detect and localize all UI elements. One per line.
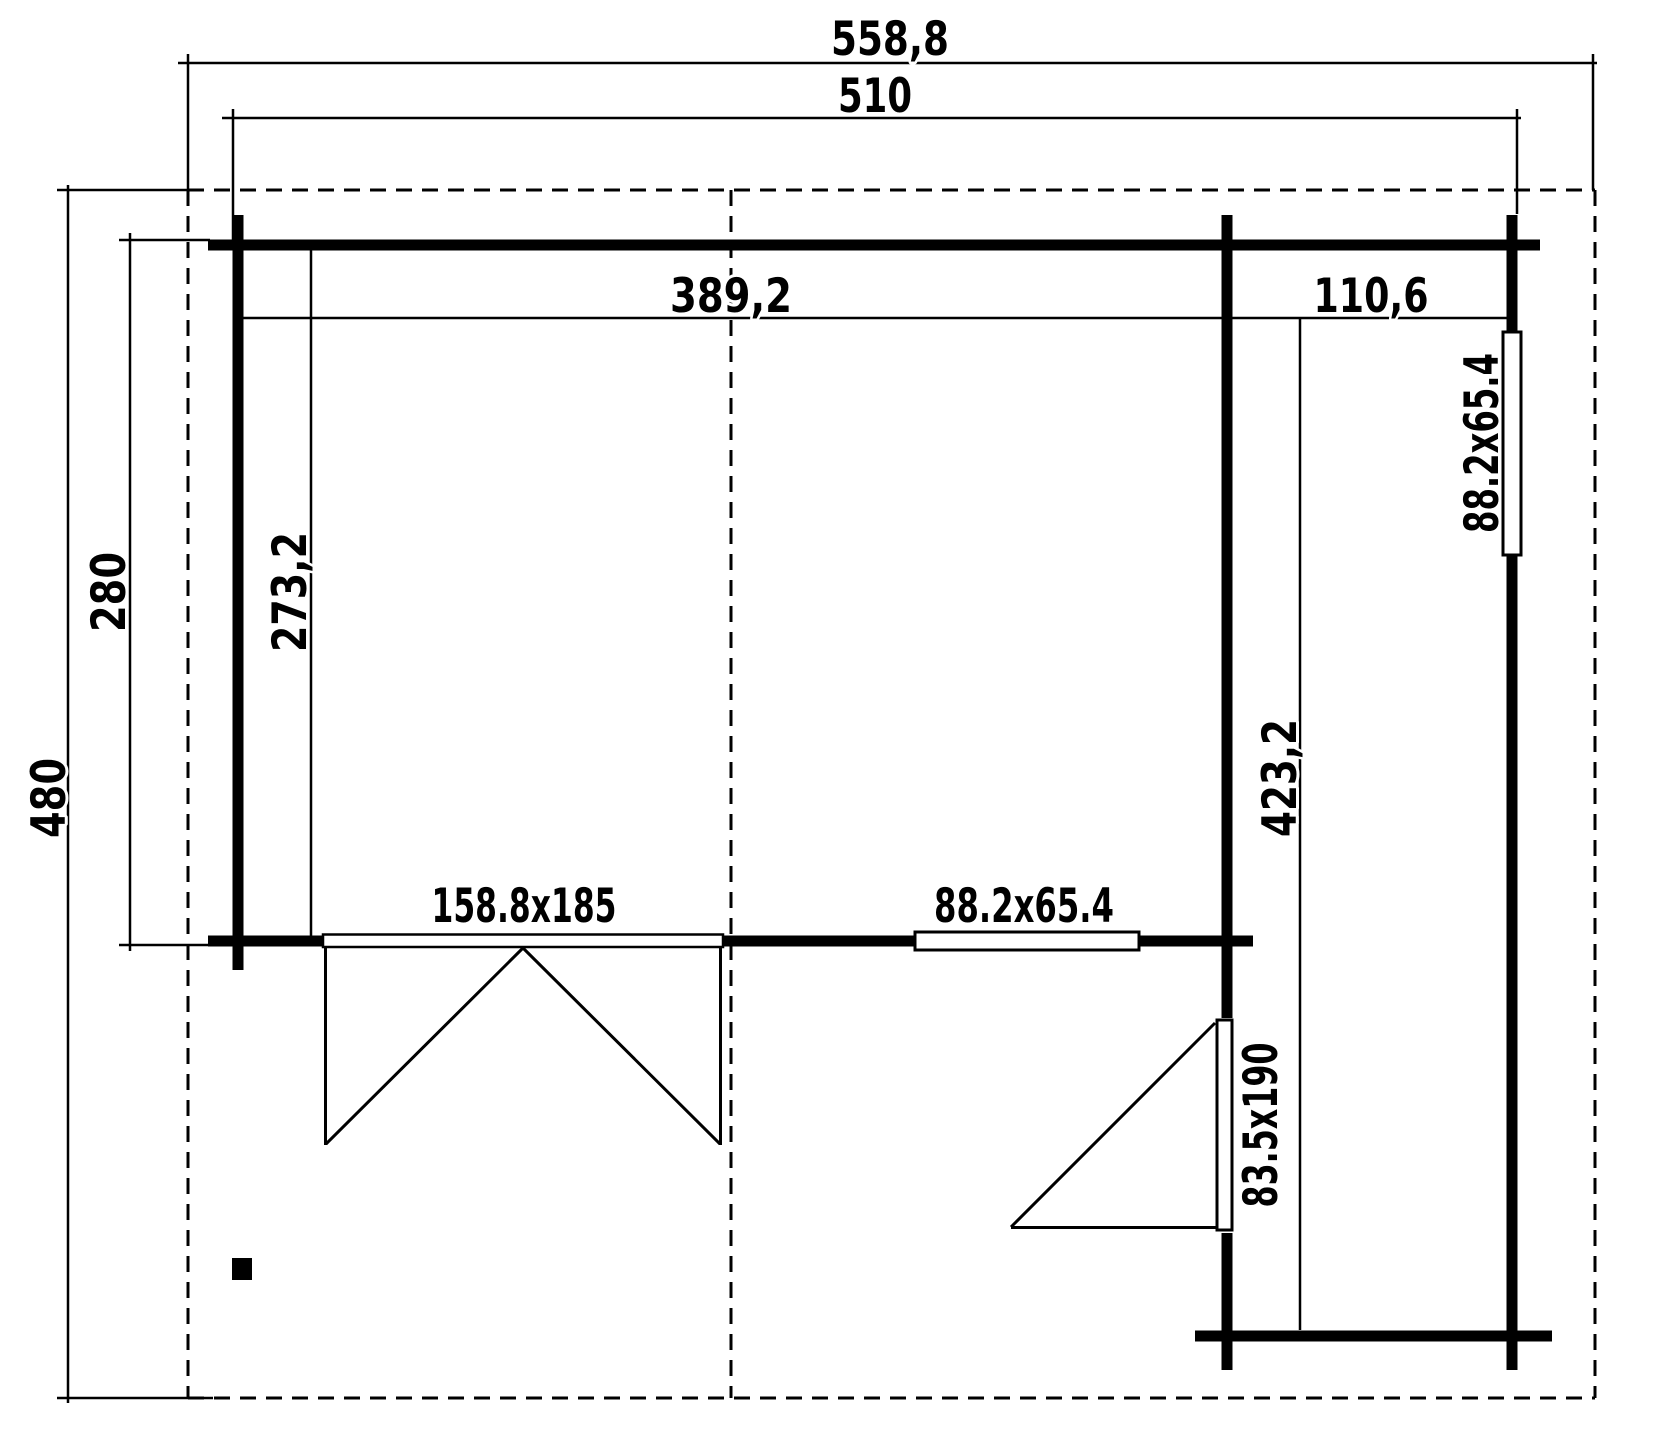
post-symbol — [232, 1258, 252, 1280]
dim-roof-width-label: 558,8 — [831, 12, 949, 67]
walls — [208, 215, 1552, 1370]
dim-main-room-depth: 273,2 — [263, 250, 318, 936]
dim-annex-width-label: 110,6 — [1314, 269, 1429, 324]
front-window-label: 88.2x65.4 — [934, 879, 1114, 934]
dim-interior-widths: 389,2 110,6 — [243, 269, 1507, 324]
front-window: 88.2x65.4 — [915, 879, 1139, 950]
double-door-left-swing — [326, 948, 523, 1144]
dim-building-width: 510 — [222, 69, 1521, 240]
double-door-threshold — [323, 935, 723, 948]
double-door: 158.8x185 — [323, 879, 723, 1145]
annex-door: 83.5x190 — [1011, 1020, 1289, 1230]
dim-main-depth-label: 280 — [82, 552, 137, 632]
dim-roof-depth-label: 480 — [22, 758, 77, 838]
side-window: 88.2x65.4 — [1455, 332, 1521, 555]
annex-door-label: 83.5x190 — [1234, 1043, 1289, 1208]
roof-outline — [188, 190, 1595, 1398]
annex-door-swing — [1011, 1023, 1215, 1227]
annex-door-leaf — [1217, 1020, 1232, 1230]
double-door-right-swing — [523, 948, 720, 1144]
dim-building-width-label: 510 — [838, 69, 912, 124]
side-window-label: 88.2x65.4 — [1455, 353, 1510, 533]
floor-plan-canvas: 158.8x185 88.2x65.4 88.2x65.4 83.5x190 5… — [0, 0, 1664, 1453]
front-window-symbol — [915, 932, 1139, 950]
dim-annex-depth-label: 423,2 — [1253, 719, 1308, 837]
dim-roof-depth: 480 — [22, 185, 213, 1403]
dim-main-room-depth-label: 273,2 — [263, 532, 318, 652]
floor-plan-drawing: 158.8x185 88.2x65.4 88.2x65.4 83.5x190 5… — [0, 0, 1664, 1453]
double-door-label: 158.8x185 — [432, 879, 617, 934]
dim-main-depth: 280 — [82, 233, 210, 951]
dim-main-room-width-label: 389,2 — [670, 269, 792, 324]
